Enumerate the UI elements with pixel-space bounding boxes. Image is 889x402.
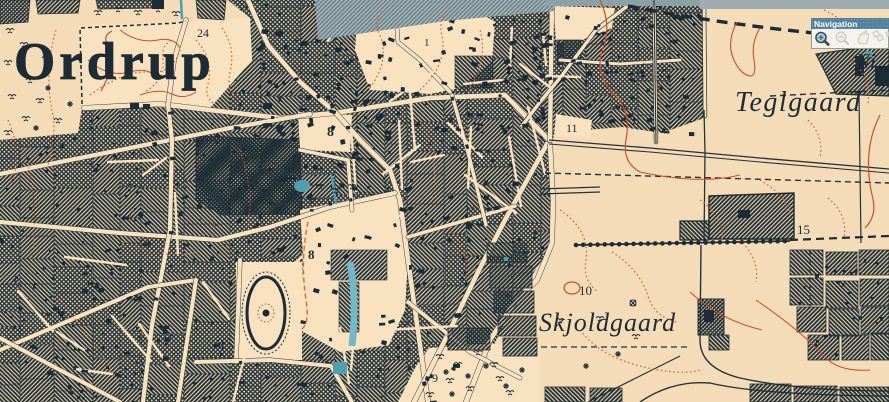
- svg-text:24: 24: [197, 26, 209, 40]
- svg-text:8: 8: [327, 125, 334, 140]
- svg-text:Ni: Ni: [855, 49, 876, 73]
- svg-text:Teglgaard: Teglgaard: [735, 87, 862, 118]
- svg-text:Skjoldgaard: Skjoldgaard: [539, 308, 676, 337]
- svg-text:1: 1: [424, 37, 430, 49]
- svg-text:15: 15: [797, 222, 810, 237]
- svg-text:Ordrup: Ordrup: [14, 33, 215, 91]
- svg-text:11: 11: [566, 121, 578, 135]
- svg-text:10: 10: [579, 283, 592, 298]
- svg-text:8: 8: [308, 247, 315, 262]
- svg-text:9: 9: [432, 371, 438, 385]
